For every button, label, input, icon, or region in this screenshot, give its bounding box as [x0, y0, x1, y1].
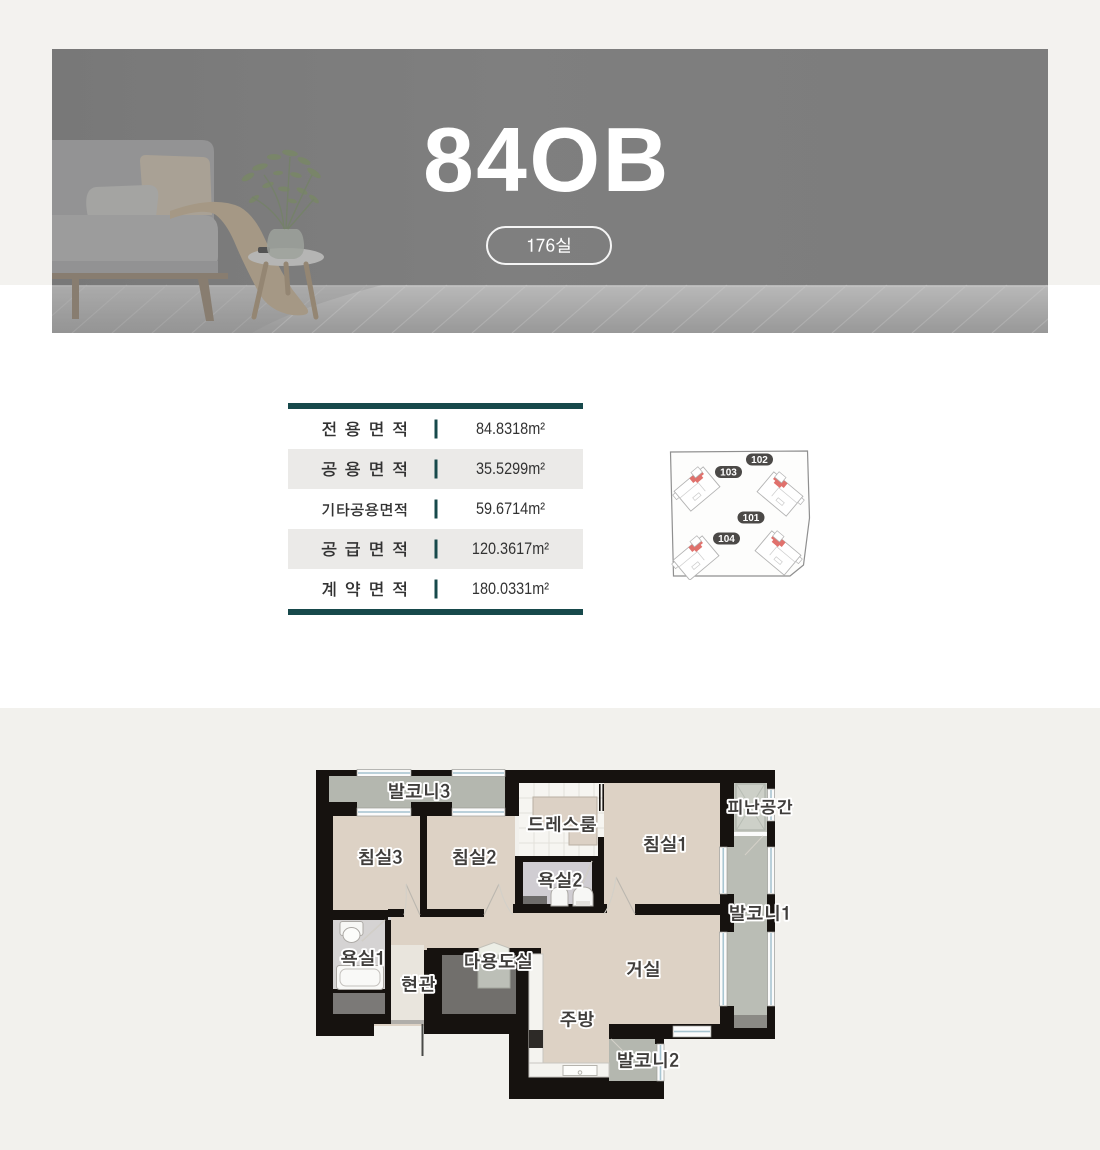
svg-text:104: 104 — [718, 534, 735, 545]
svg-text:102: 102 — [751, 455, 768, 466]
svg-text:103: 103 — [720, 468, 737, 479]
svg-text:101: 101 — [743, 513, 760, 524]
